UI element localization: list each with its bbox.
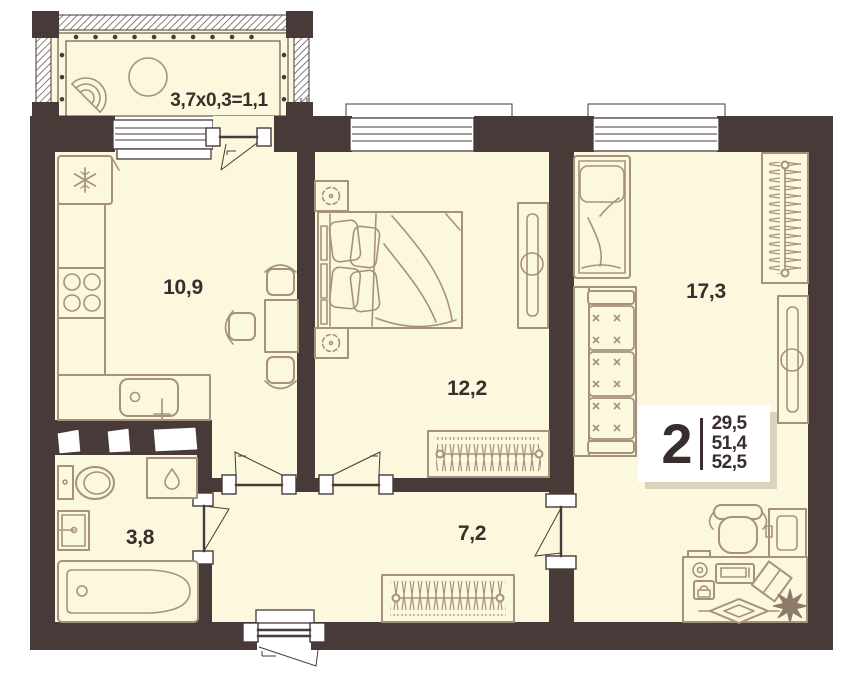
- wall-top: [717, 116, 833, 152]
- room-label-living: 17,3: [686, 280, 726, 304]
- vent-shaft: [57, 429, 81, 454]
- washing-machine-icon: [147, 458, 197, 498]
- stamp-area-living: 29,5: [712, 414, 747, 433]
- stamp-area-total: 52,5: [712, 453, 747, 472]
- vent-shaft: [153, 427, 198, 452]
- window-bedroom: [350, 118, 474, 151]
- toilet-icon: [58, 466, 114, 499]
- stove-icon: [58, 268, 105, 318]
- window-kitchen: [113, 120, 213, 159]
- hanger-wardrobe-icon: [762, 153, 808, 283]
- wall-bottom: [30, 622, 833, 650]
- hanger-wardrobe-icon: [382, 575, 514, 622]
- floor-plan-drawing: [0, 0, 864, 691]
- plant-icon: [773, 589, 807, 623]
- phone-icon: [694, 581, 714, 599]
- wardrobe-icon: [778, 296, 808, 423]
- kitchen-sink-icon: [120, 379, 178, 419]
- wall-top: [30, 116, 115, 152]
- wall-kitchen-bedroom: [297, 152, 315, 478]
- single-bed-icon: [574, 156, 630, 278]
- vent-shaft: [107, 428, 131, 453]
- wall-top: [274, 116, 352, 152]
- hallway-furniture: [382, 575, 514, 622]
- wall-left: [30, 116, 55, 650]
- wall-right: [808, 116, 833, 650]
- balcony-post: [286, 11, 313, 38]
- double-bed-icon: [318, 212, 462, 328]
- apartment-stamp: 2 29,5 51,4 52,5: [638, 405, 770, 482]
- room-label-bedroom: 12,2: [447, 377, 487, 401]
- sofa-icon: [574, 287, 636, 456]
- dining-table-icon: [265, 300, 298, 352]
- nightstand-plant-icon: [315, 328, 348, 358]
- room-label-kitchen: 10,9: [163, 276, 203, 300]
- wall-top: [474, 116, 594, 152]
- laptop-icon: [716, 564, 754, 583]
- vent-shafts: [57, 427, 198, 454]
- fridge-icon: [58, 156, 119, 204]
- stamp-divider: [700, 418, 703, 470]
- tv-shelf-icon: [766, 509, 806, 557]
- room-label-hallway: 7,2: [458, 522, 486, 546]
- bathroom-sink-icon: [58, 511, 89, 550]
- balcony-post: [32, 11, 59, 38]
- bathtub-icon: [58, 561, 198, 622]
- nightstand-plant-icon: [315, 181, 348, 211]
- wardrobe-icon: [518, 203, 548, 328]
- floor-plan: 3,7x0,3=1,1 10,9 12,2 17,3 7,2 3,8 2 29,…: [0, 0, 864, 691]
- rooms-count: 2: [661, 420, 690, 468]
- stamp-area-main: 51,4: [712, 434, 747, 453]
- window-living: [593, 118, 719, 151]
- hanger-wardrobe-icon: [428, 431, 549, 477]
- room-label-balcony: 3,7x0,3=1,1: [170, 90, 268, 112]
- room-label-bathroom: 3,8: [126, 526, 154, 550]
- facade-lines: [301, 98, 725, 116]
